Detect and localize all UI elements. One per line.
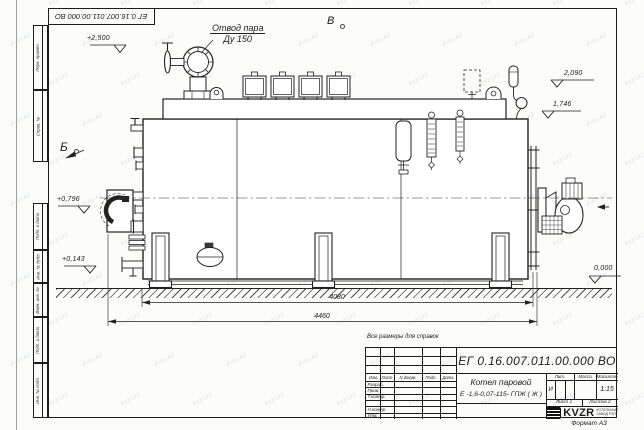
tb-line bbox=[366, 356, 456, 357]
tb-line bbox=[440, 348, 441, 419]
doc-number-rotated: ЕГ 0.16.007.011.00.000 ВО bbox=[55, 12, 147, 21]
tb-logo-sub2: ЗАВОД РЭП bbox=[596, 413, 617, 417]
tb-line bbox=[366, 365, 456, 366]
tb-product-type: Е -1,6-0,07-115- ГПЖ ( Ж ) bbox=[456, 388, 546, 400]
sidebox-sprav-no: Справ. № bbox=[33, 90, 48, 162]
kvzr-logo-icon bbox=[546, 407, 561, 419]
sidebox-vzam-inv: Взам. инв. № bbox=[33, 283, 48, 317]
tb-col-list: Лист bbox=[380, 373, 394, 381]
tb-product-name: Котел паровой bbox=[456, 375, 546, 388]
sidebox-perv-primen: Перв. примен. bbox=[33, 25, 48, 90]
doc-number-top-box: ЕГ 0.16.007.011.00.000 ВО bbox=[48, 8, 155, 25]
tb-scale-value: 1:15 bbox=[596, 380, 618, 399]
tb-doc-number: ЕГ 0.16.007.011.00.000 ВО bbox=[456, 348, 618, 373]
tb-line bbox=[366, 400, 456, 401]
sidebox-label: Взам. инв. № bbox=[35, 287, 40, 314]
tb-logo-name: KVZR bbox=[563, 407, 594, 419]
tb-line bbox=[394, 348, 395, 419]
sidebox-inv-podl: Инв. № подл. bbox=[33, 363, 48, 418]
tb-col-dokum: N докум. bbox=[394, 373, 422, 381]
tb-sheets: Листов 2 bbox=[582, 399, 618, 406]
tb-sheet: Лист 1 bbox=[546, 399, 582, 406]
tb-line bbox=[555, 380, 556, 399]
sidebox-label: Перв. примен. bbox=[35, 43, 40, 72]
tb-lit-value: И bbox=[546, 380, 555, 399]
title-block: ЕГ 0.16.007.011.00.000 ВО Котел паровой … bbox=[365, 347, 617, 418]
tb-mass-header: Масса bbox=[574, 373, 596, 380]
sidebox-label: Инв. № дубл. bbox=[35, 253, 40, 279]
sidebox-label: Инв. № подл. bbox=[35, 377, 40, 404]
sidebox-label: Подп. и дата bbox=[35, 213, 40, 240]
tb-line bbox=[565, 380, 566, 399]
tb-scale-header: Масштаб bbox=[596, 373, 618, 380]
tb-col-izm: Изм bbox=[366, 373, 380, 381]
tb-col-podp: Подп. bbox=[422, 373, 440, 381]
tb-line bbox=[456, 403, 546, 404]
tb-logo: KVZR КОТЕЛЬНЫЙ ЗАВОД РЭП bbox=[546, 406, 618, 419]
format-note: Формат А3 bbox=[534, 420, 644, 427]
sidebox-label: Подп. и дата bbox=[35, 327, 40, 354]
drawing-sheet: kvzr.kzkvzr.kzkvzr.kzkvzr.kzkvzr.kzkvzr.… bbox=[0, 0, 644, 430]
sidebox-label: Справ. № bbox=[35, 116, 40, 136]
tb-line bbox=[422, 348, 423, 419]
tb-lit-header: Лит. bbox=[546, 373, 574, 380]
tb-col-data: Дата bbox=[440, 373, 456, 381]
sidebox-podp-data-2: Подп. и дата bbox=[33, 317, 48, 363]
sidebox-inv-dubl: Инв. № дубл. bbox=[33, 250, 48, 283]
tb-row-utv: Утв. bbox=[366, 413, 394, 419]
sidebox-podp-data-1: Подп. и дата bbox=[33, 203, 48, 250]
tb-row-tkontr: Т.контр. bbox=[366, 394, 394, 400]
